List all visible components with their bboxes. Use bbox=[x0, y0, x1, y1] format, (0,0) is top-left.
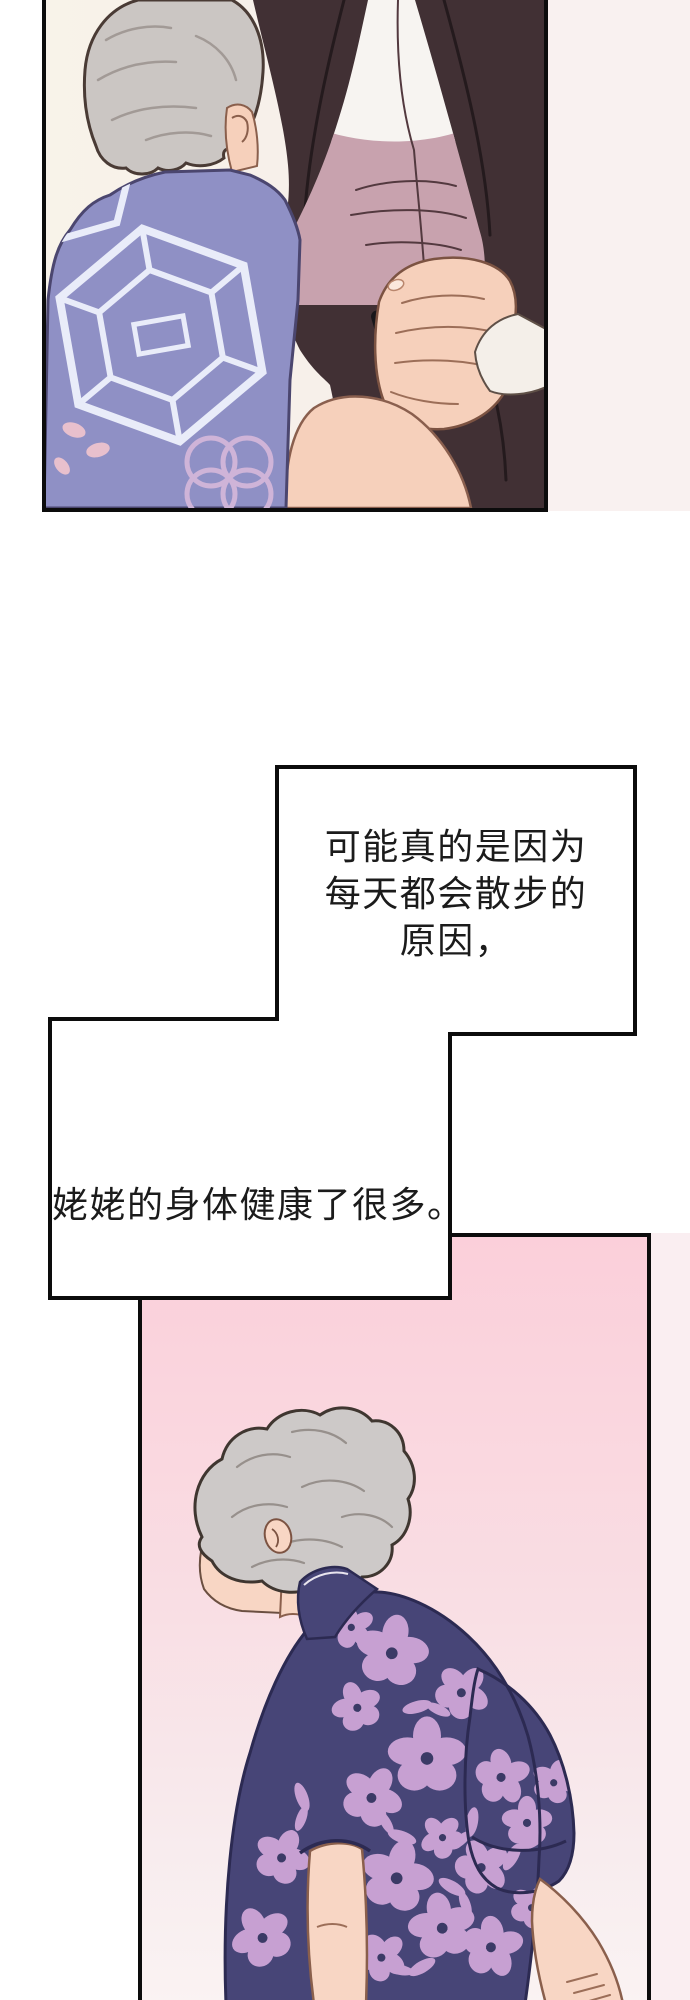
caption-text-1: 可能真的是因为 每天都会散步的 原因， bbox=[279, 769, 633, 964]
caption-line: 可能真的是因为 bbox=[279, 823, 633, 870]
caption-text-2: 姥姥的身体健康了很多。 bbox=[52, 1021, 448, 1228]
grandma-neck bbox=[226, 105, 258, 172]
grandma-shirt bbox=[46, 170, 300, 508]
caption-line: 原因， bbox=[279, 917, 633, 964]
page-margin-tint-top bbox=[548, 0, 690, 511]
panel-2 bbox=[138, 1233, 651, 2000]
panel-1-art bbox=[46, 0, 544, 508]
panel-1 bbox=[42, 0, 548, 512]
border-patch bbox=[279, 1016, 456, 1032]
caption-line: 每天都会散步的 bbox=[279, 870, 633, 917]
panel-2-art bbox=[142, 1237, 647, 2000]
caption-line: 姥姥的身体健康了很多。 bbox=[52, 1181, 448, 1228]
caption-box-2: 姥姥的身体健康了很多。 bbox=[48, 1017, 452, 1300]
comic-page: 可能真的是因为 每天都会散步的 原因， 姥姥的身体健康了很多。 bbox=[0, 0, 690, 2000]
page-margin-tint-bottom bbox=[651, 1233, 690, 2000]
caption-box-1: 可能真的是因为 每天都会散步的 原因， bbox=[275, 765, 637, 1036]
left-arm bbox=[308, 1843, 367, 2000]
